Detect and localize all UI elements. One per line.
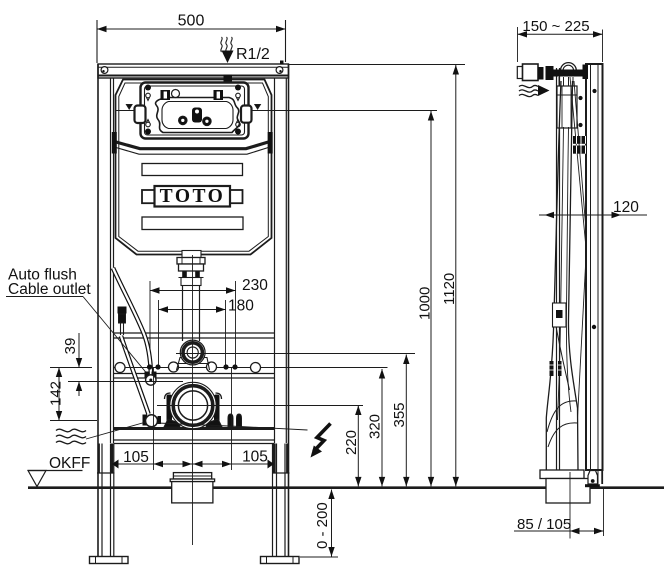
svg-text:Cable outlet: Cable outlet [8,281,91,298]
svg-text:1120: 1120 [441,273,458,305]
svg-text:39: 39 [62,338,79,355]
svg-text:355: 355 [391,402,408,427]
svg-text:0 - 200: 0 - 200 [314,502,331,549]
svg-text:OKFF: OKFF [49,455,90,472]
svg-text:220: 220 [343,430,360,455]
svg-text:320: 320 [367,414,384,439]
svg-text:180: 180 [228,298,254,315]
svg-text:1000: 1000 [417,287,434,320]
svg-text:85 / 105: 85 / 105 [517,516,571,533]
svg-text:150 ~ 225: 150 ~ 225 [522,18,589,35]
svg-text:142: 142 [48,381,65,406]
svg-text:TOTO: TOTO [160,186,226,207]
svg-text:105: 105 [123,449,149,466]
svg-text:105: 105 [242,449,268,466]
svg-text:500: 500 [178,13,205,30]
svg-text:230: 230 [242,277,268,294]
svg-text:120: 120 [613,199,639,216]
svg-text:R1/2: R1/2 [236,46,270,63]
